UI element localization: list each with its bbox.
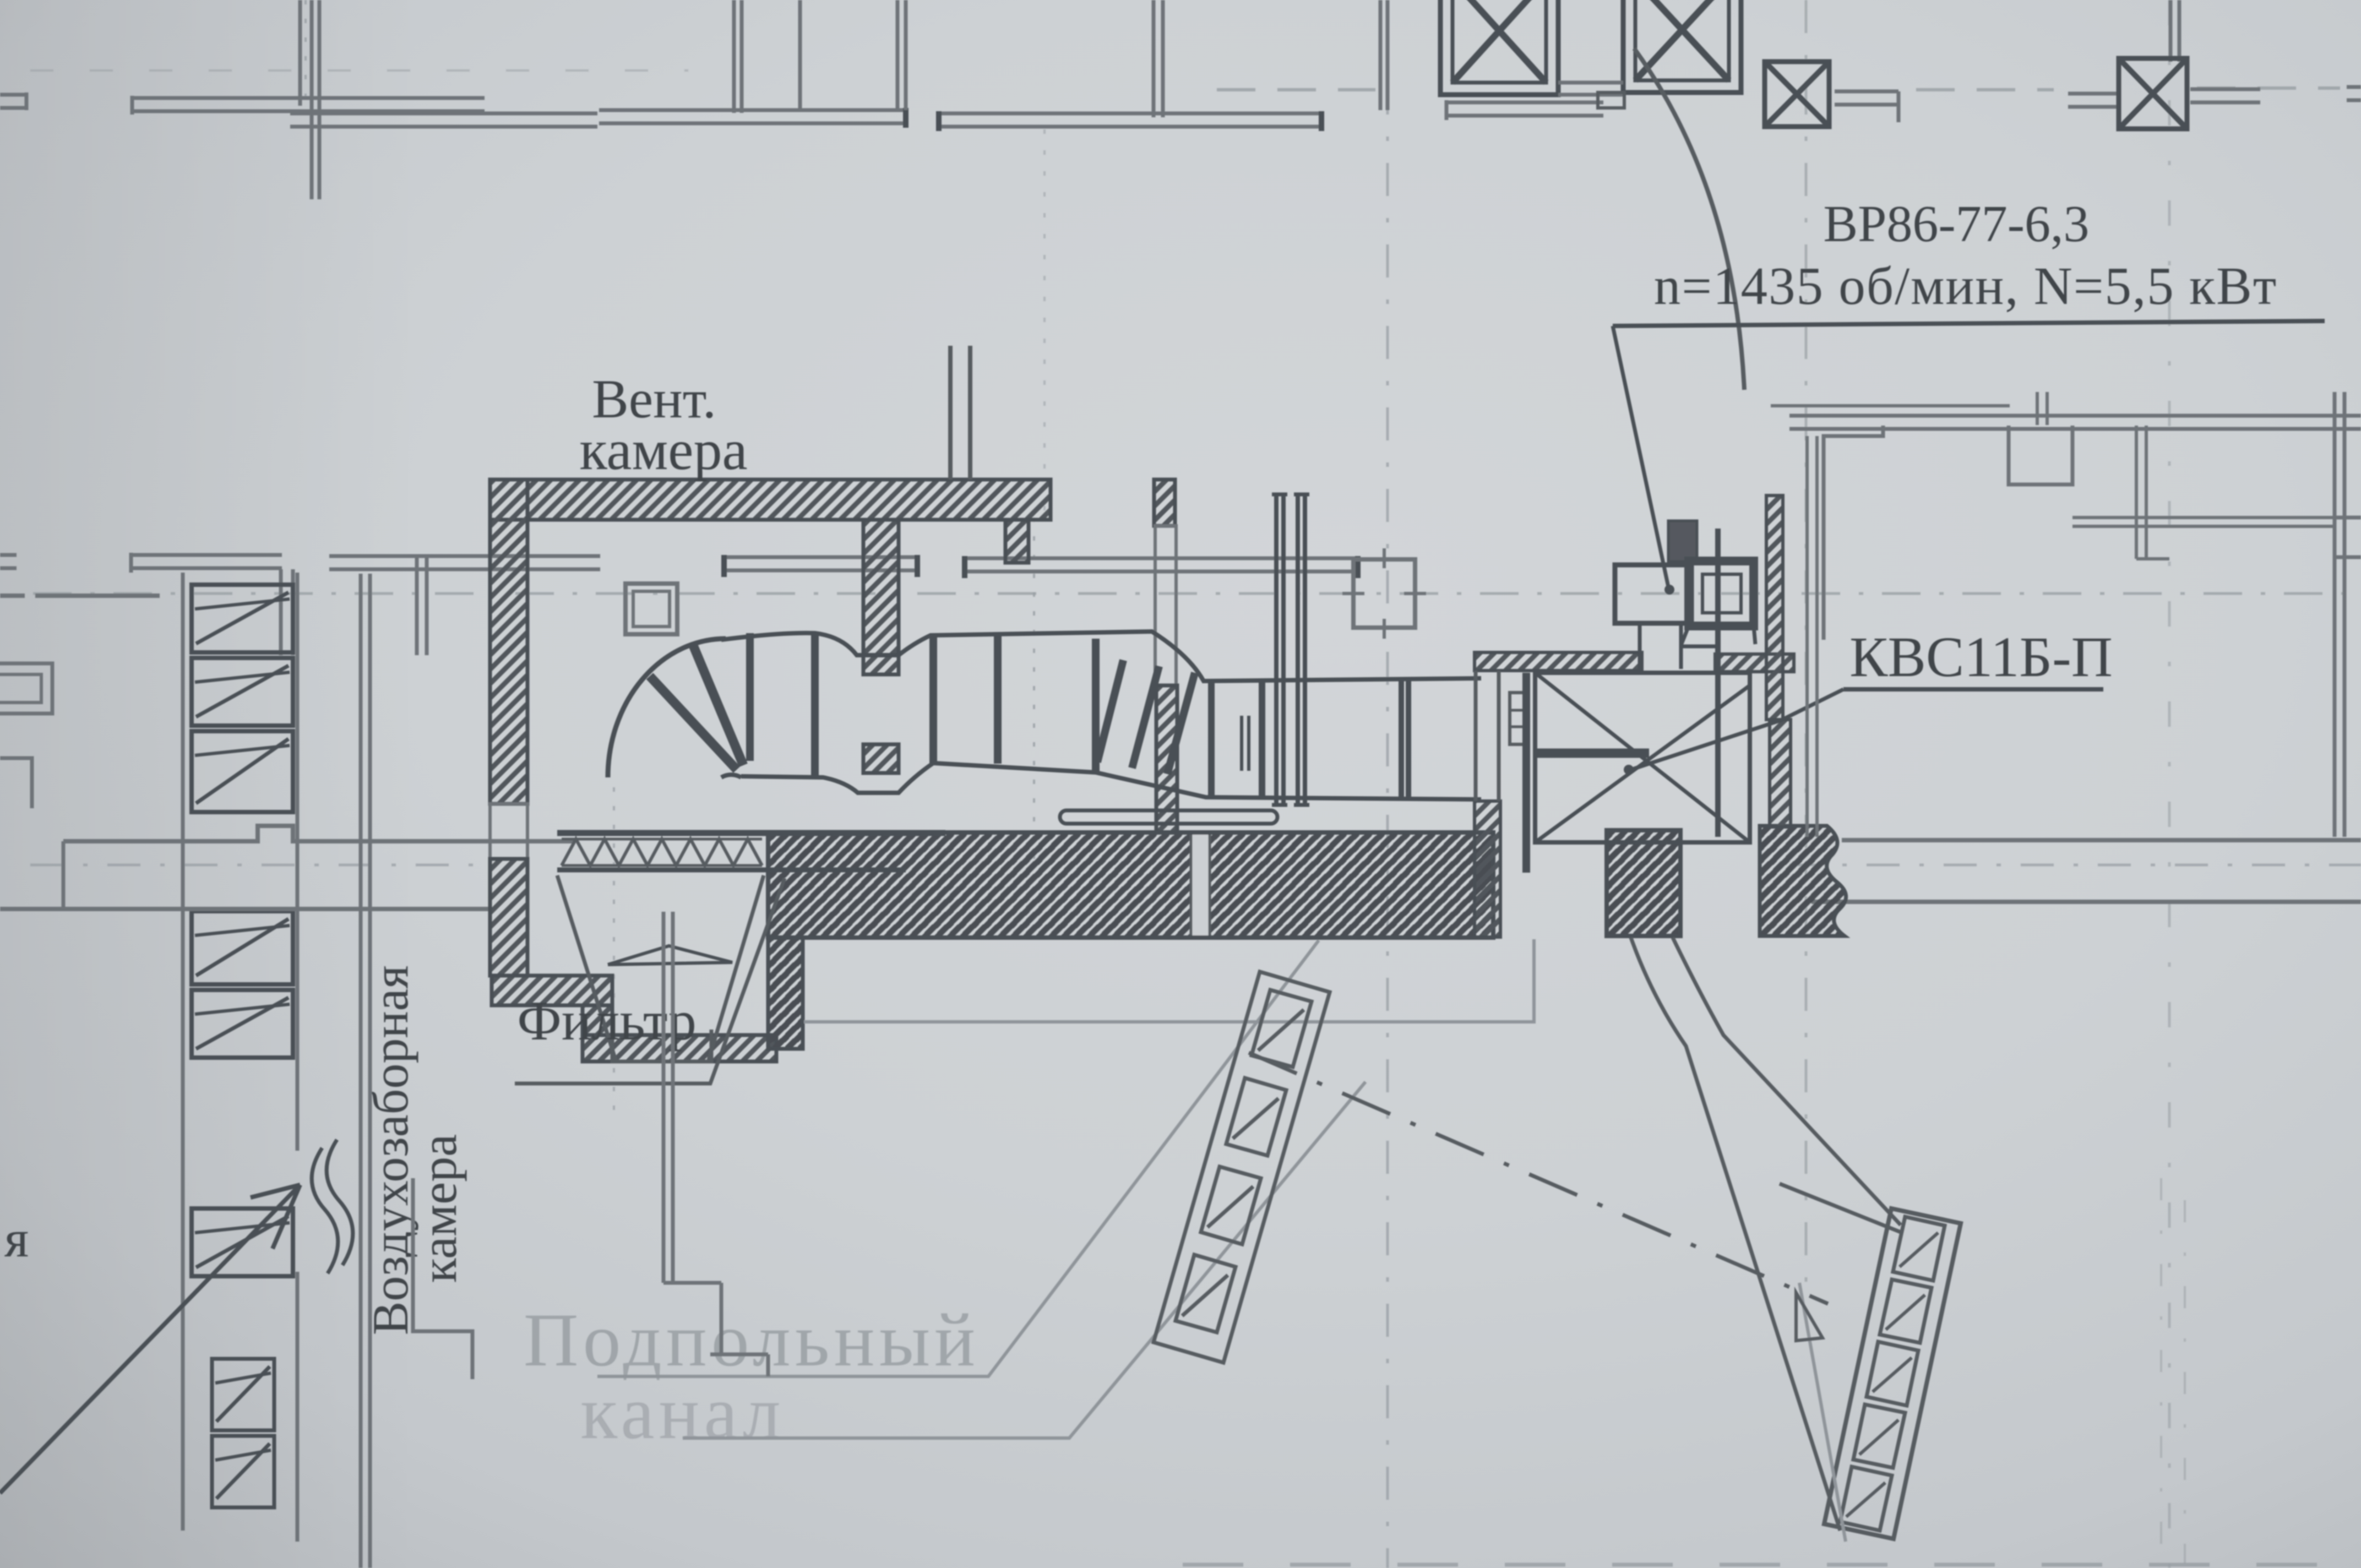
svg-text:камера: камера [579, 418, 747, 482]
svg-text:КВС11Б-П: КВС11Б-П [1849, 625, 2113, 689]
svg-text:канал: канал [580, 1370, 785, 1455]
svg-text:камера: камера [411, 1134, 467, 1283]
svg-text:Фильтр: Фильтр [517, 990, 697, 1052]
svg-text:я: я [4, 1209, 29, 1268]
svg-text:n=1435 об/мин, N=5,5 кВт: n=1435 об/мин, N=5,5 кВт [1654, 257, 2277, 315]
svg-text:ВР86-77-6,3: ВР86-77-6,3 [1823, 195, 2089, 253]
svg-text:Подпольный: Подпольный [524, 1298, 980, 1382]
